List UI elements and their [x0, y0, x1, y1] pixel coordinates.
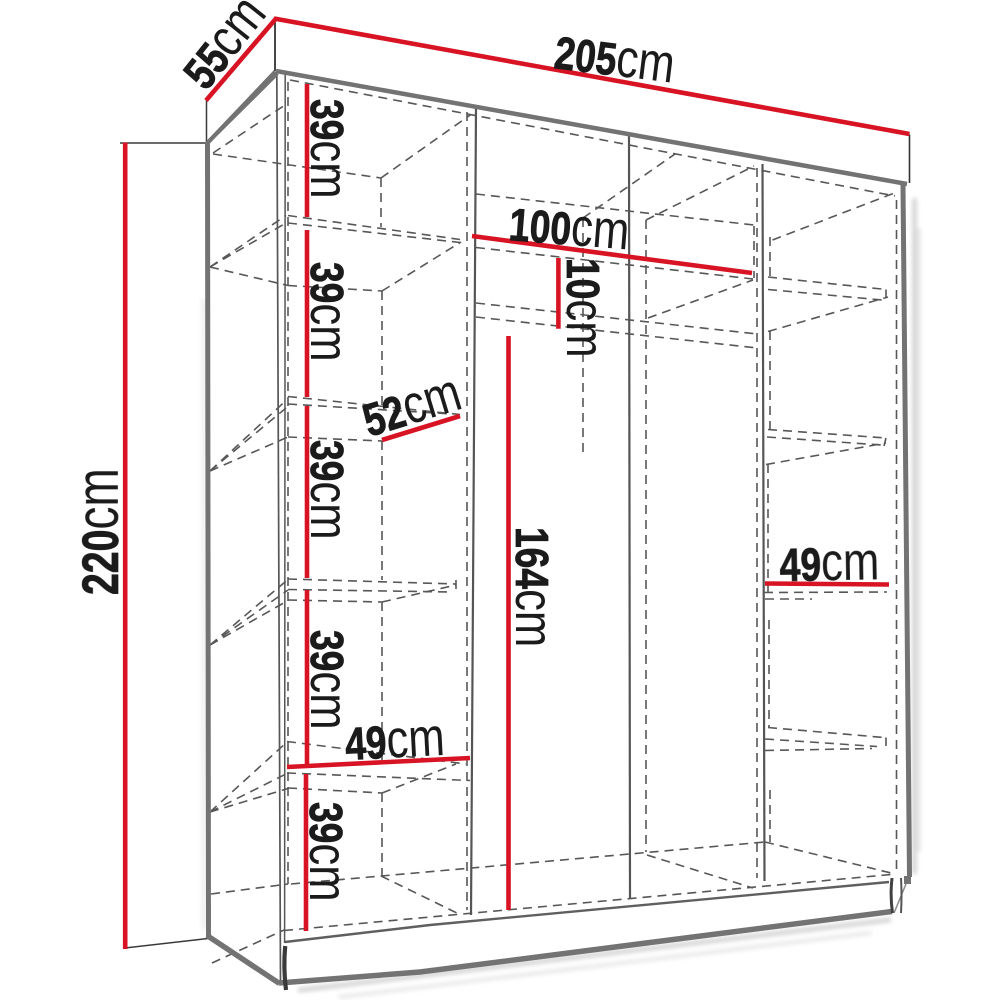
svg-text:39cm: 39cm [299, 630, 358, 730]
svg-text:49cm: 49cm [344, 708, 447, 773]
svg-text:39cm: 39cm [299, 262, 358, 362]
svg-text:39cm: 39cm [299, 99, 358, 199]
svg-text:49cm: 49cm [779, 532, 880, 593]
svg-text:100cm: 100cm [507, 193, 632, 262]
svg-text:164cm: 164cm [504, 527, 563, 647]
svg-text:220cm: 220cm [65, 468, 131, 595]
svg-text:39cm: 39cm [299, 440, 358, 540]
svg-text:10cm: 10cm [555, 258, 614, 358]
svg-text:39cm: 39cm [298, 802, 357, 902]
